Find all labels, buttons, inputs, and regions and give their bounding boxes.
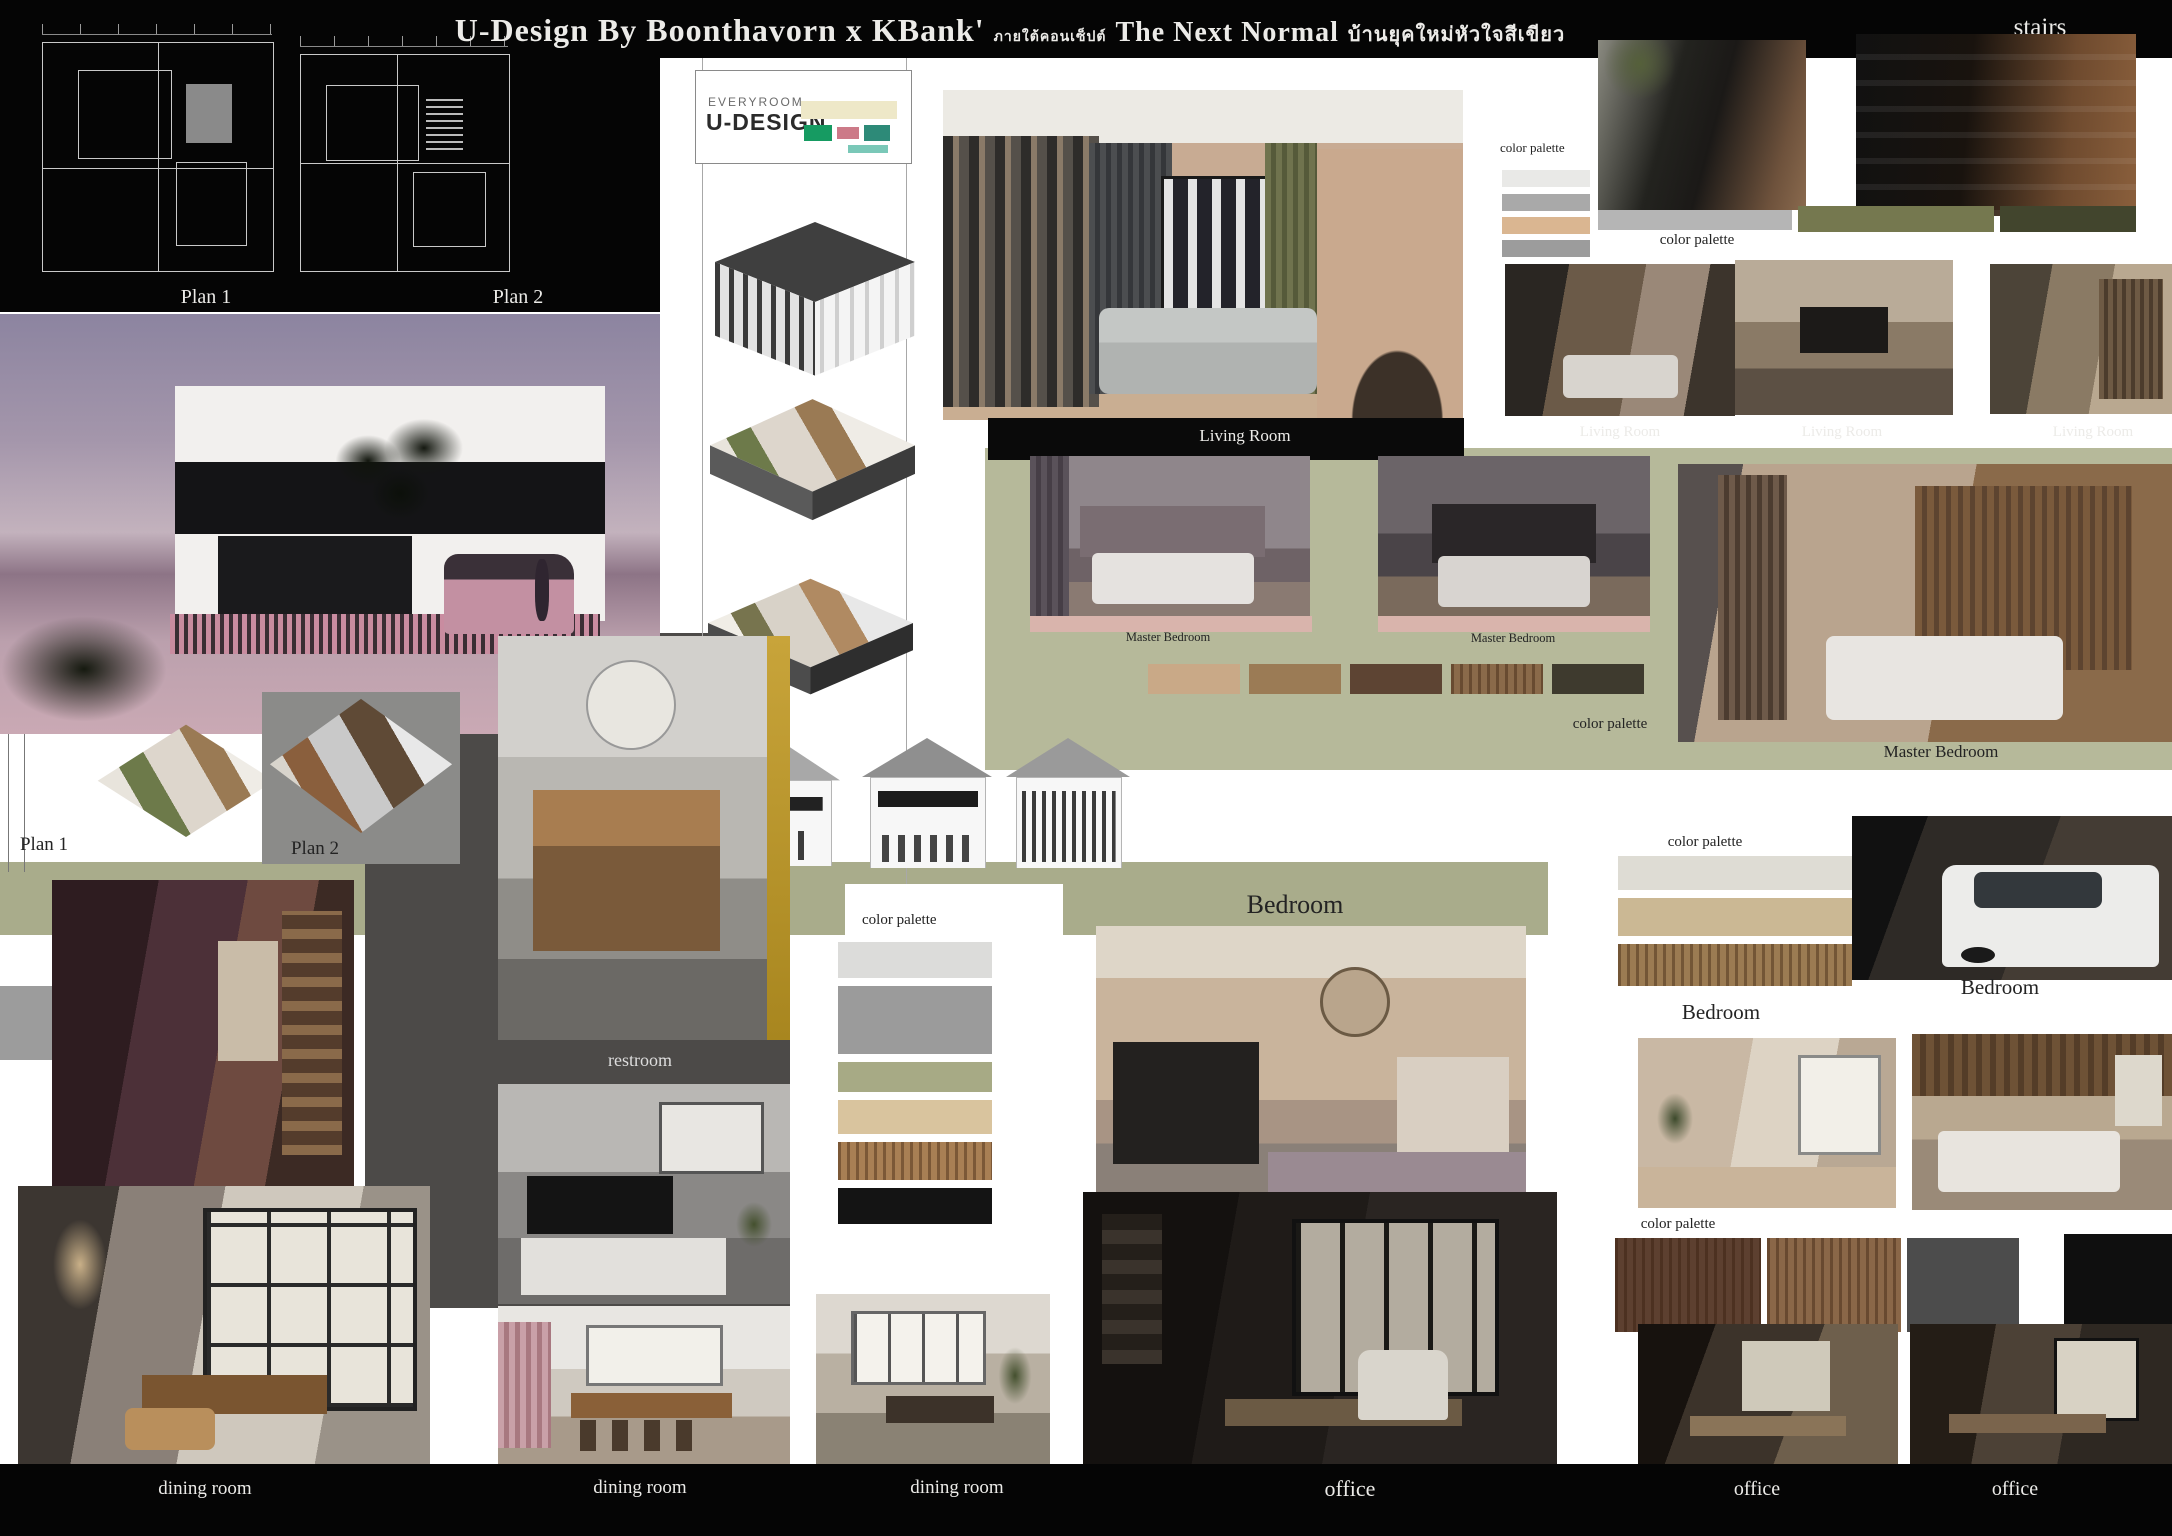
bed — [1826, 636, 2063, 719]
master-bedroom-label: Master Bedroom — [1471, 631, 1555, 646]
color-palette-label: color palette — [862, 912, 937, 929]
blueprint-plan-1-drawing — [42, 42, 274, 272]
desk — [1690, 1416, 1846, 1436]
render-bedroom-right-2 — [1912, 1034, 2172, 1210]
headboard — [1432, 504, 1595, 562]
palette-swatch — [1502, 170, 1590, 187]
elevation-drawing-3 — [862, 738, 992, 868]
plant — [732, 1198, 776, 1264]
chair — [125, 1408, 215, 1450]
curtain — [1030, 456, 1069, 624]
iso-plan-1-label: Plan 1 — [20, 834, 68, 856]
window — [659, 1102, 764, 1174]
pink-car — [444, 554, 574, 634]
render-stairs-1 — [1598, 40, 1806, 210]
person-figure — [535, 559, 549, 621]
round-mirror — [1320, 967, 1390, 1037]
floor — [1638, 1167, 1896, 1208]
pink-accent-bar — [1378, 616, 1650, 632]
axonometric-house-top — [715, 222, 915, 382]
wood-slat-wall — [2099, 279, 2163, 399]
palette-swatch — [2064, 1234, 2172, 1334]
render-restroom — [498, 636, 790, 1040]
partner-logo — [864, 125, 890, 141]
render-office-main — [1083, 1192, 1557, 1464]
window — [1742, 1341, 1830, 1411]
title-concept: The Next Normal — [1115, 17, 1338, 48]
dining-table — [886, 1396, 994, 1423]
board-title: U-Design By Boonthavorn x KBank' ภายใต้ค… — [455, 12, 1566, 50]
blueprint-car-block — [186, 84, 232, 143]
palette-swatch — [1350, 664, 1442, 694]
blueprint-plan-2-drawing — [300, 54, 510, 272]
headboard — [1080, 506, 1265, 556]
master-bedroom-label: Master Bedroom — [1884, 742, 1999, 762]
mirror-light — [218, 941, 278, 1061]
blueprint-dimension-ticks — [42, 24, 272, 35]
window — [1798, 1055, 1881, 1155]
render-dining-room-2 — [498, 1306, 790, 1464]
render-office-3 — [1910, 1324, 2172, 1464]
color-palette-label: color palette — [1573, 716, 1648, 733]
plant — [994, 1342, 1036, 1426]
palette-swatch — [838, 1188, 992, 1224]
elevation-body — [1016, 777, 1122, 868]
render-office-2 — [1638, 1324, 1898, 1464]
round-mirror — [586, 660, 676, 750]
blueprint-room — [326, 85, 420, 160]
render-living-room-4 — [1990, 264, 2172, 414]
island-counter — [521, 1238, 725, 1295]
iso-plate — [90, 716, 282, 860]
palette-swatch — [1598, 210, 1792, 230]
palette-swatch — [1618, 898, 1852, 936]
color-palette-label: color palette — [1641, 1216, 1716, 1233]
bedroom-label: Bedroom — [1961, 975, 2039, 1000]
window — [851, 1311, 986, 1385]
blueprint-line — [158, 43, 159, 271]
axonometric-floor-mid — [710, 392, 915, 570]
iso-plan-2-label: Plan 2 — [291, 838, 339, 860]
master-bedroom-label: Master Bedroom — [1126, 630, 1210, 645]
house-dark-wing — [218, 536, 412, 621]
title-thai-prefix: ภายใต้คอนเซ็ปต์ — [994, 30, 1107, 45]
living-room-label: Living Room — [1199, 426, 1290, 446]
palette-swatch — [1552, 664, 1644, 694]
living-room-label: Living Room — [1580, 424, 1660, 441]
sofa — [1099, 308, 1317, 394]
render-living-room-3 — [1735, 260, 1953, 415]
yellow-door-strip — [767, 636, 790, 1040]
color-palette-label: color palette — [1660, 232, 1735, 249]
bed — [1563, 355, 1678, 398]
partner-logo — [848, 145, 888, 153]
plant — [1653, 1089, 1697, 1163]
palette-swatch — [838, 1062, 992, 1092]
bedroom-label: Bedroom — [1682, 1000, 1760, 1025]
pink-curtain — [498, 1322, 551, 1448]
palette-swatch — [838, 1100, 992, 1134]
office-chair — [1358, 1350, 1448, 1420]
palette-swatch — [1249, 664, 1341, 694]
desk — [1949, 1414, 2106, 1434]
tv-panel — [1800, 307, 1887, 354]
car-wheel — [1961, 947, 1995, 963]
window-wall — [943, 136, 1099, 407]
logo-everyroom-text: EVERYROOM — [708, 95, 804, 109]
office-label: office — [1325, 1476, 1376, 1502]
partner-logo — [837, 127, 859, 139]
restroom-label: restroom — [608, 1050, 672, 1071]
palette-swatch-wood — [1451, 664, 1543, 694]
bookshelf — [1102, 1214, 1162, 1364]
render-master-bedroom-main — [1678, 464, 2172, 742]
plan-1-label: Plan 1 — [181, 286, 232, 309]
render-bedroom-right-1 — [1638, 1038, 1896, 1208]
shelving — [282, 911, 342, 1156]
render-master-bedroom-1 — [1030, 456, 1310, 624]
title-thai-suffix: บ้านยุคใหม่หัวใจสีเขียว — [1348, 24, 1565, 46]
arch-wall — [1317, 149, 1463, 420]
living-room-label: Living Room — [1802, 424, 1882, 441]
blueprint-room — [176, 162, 247, 246]
palette-swatch — [1907, 1238, 2019, 1332]
dining-table — [571, 1393, 732, 1418]
palette-swatch-wood — [1618, 944, 1852, 986]
chairs — [580, 1420, 708, 1452]
window — [2054, 1338, 2139, 1421]
render-dining-room-1 — [18, 1186, 430, 1464]
presentation-board: Plan 1 Plan 2 U-Design By Boonthavorn x … — [0, 0, 2172, 1536]
palette-swatch-wood — [838, 1142, 992, 1180]
color-palette-label: color palette — [1668, 834, 1743, 851]
dining-room-label: dining room — [910, 1477, 1003, 1499]
kbank-logo — [804, 125, 832, 141]
render-bedroom-main — [1096, 926, 1526, 1216]
render-garage-car — [1852, 816, 2172, 980]
elevation-drawing-4 — [1006, 738, 1130, 868]
window — [2115, 1055, 2162, 1125]
blueprint-stair-block — [426, 98, 463, 150]
blueprint-line — [301, 163, 509, 164]
partner-banner — [801, 101, 897, 119]
iso-plan-1 — [90, 716, 282, 860]
render-kitchen — [498, 1084, 790, 1304]
render-living-room-2 — [1505, 264, 1735, 416]
palm-tree — [320, 409, 480, 539]
dining-room-label: dining room — [593, 1477, 686, 1499]
bottom-black-strip — [0, 1464, 2172, 1536]
palette-swatch — [1502, 240, 1590, 257]
blueprint-line — [397, 55, 398, 271]
bed — [1092, 553, 1254, 603]
elevation-body — [870, 777, 986, 868]
office-label: office — [1992, 1478, 2038, 1501]
office-label: office — [1734, 1478, 1780, 1501]
palette-swatch — [838, 942, 992, 978]
dining-room-label: dining room — [158, 1478, 251, 1500]
window — [586, 1325, 723, 1386]
cabinet — [533, 846, 720, 951]
palette-swatch — [1798, 206, 1994, 232]
palette-swatch — [1618, 856, 1852, 890]
left-gray-block — [0, 986, 58, 1060]
render-dining-room-3 — [816, 1294, 1050, 1464]
car-windshield — [1974, 872, 2102, 908]
render-wardrobe — [52, 880, 354, 1186]
udesign-logo-box: EVERYROOM U-DESIGN — [695, 70, 912, 164]
bed — [1938, 1131, 2120, 1193]
render-living-room-main — [943, 90, 1463, 420]
render-master-bedroom-2 — [1378, 456, 1650, 628]
living-room-label: Living Room — [2053, 424, 2133, 441]
title-main: U-Design By Boonthavorn x KBank' — [455, 12, 985, 48]
bedroom-heading: Bedroom — [1247, 890, 1344, 920]
pampas-plant — [43, 1219, 117, 1349]
palette-swatch — [1502, 194, 1590, 211]
bed — [1438, 556, 1590, 608]
plan-2-label: Plan 2 — [493, 286, 544, 309]
induction-hob — [527, 1176, 673, 1233]
palette-swatch — [838, 986, 992, 1054]
palette-swatch — [1148, 664, 1240, 694]
tv-wall — [1113, 1042, 1259, 1164]
wood-vanity — [533, 790, 720, 847]
palette-swatch — [1502, 217, 1590, 234]
curtain — [1718, 475, 1787, 720]
color-palette-label: color palette — [1500, 140, 1565, 156]
palette-swatch — [2000, 206, 2136, 232]
blueprint-room — [413, 172, 486, 247]
render-stairs-2 — [1856, 34, 2136, 216]
palette-swatch-wood — [1767, 1238, 1901, 1332]
palette-swatch-wood — [1615, 1238, 1761, 1332]
